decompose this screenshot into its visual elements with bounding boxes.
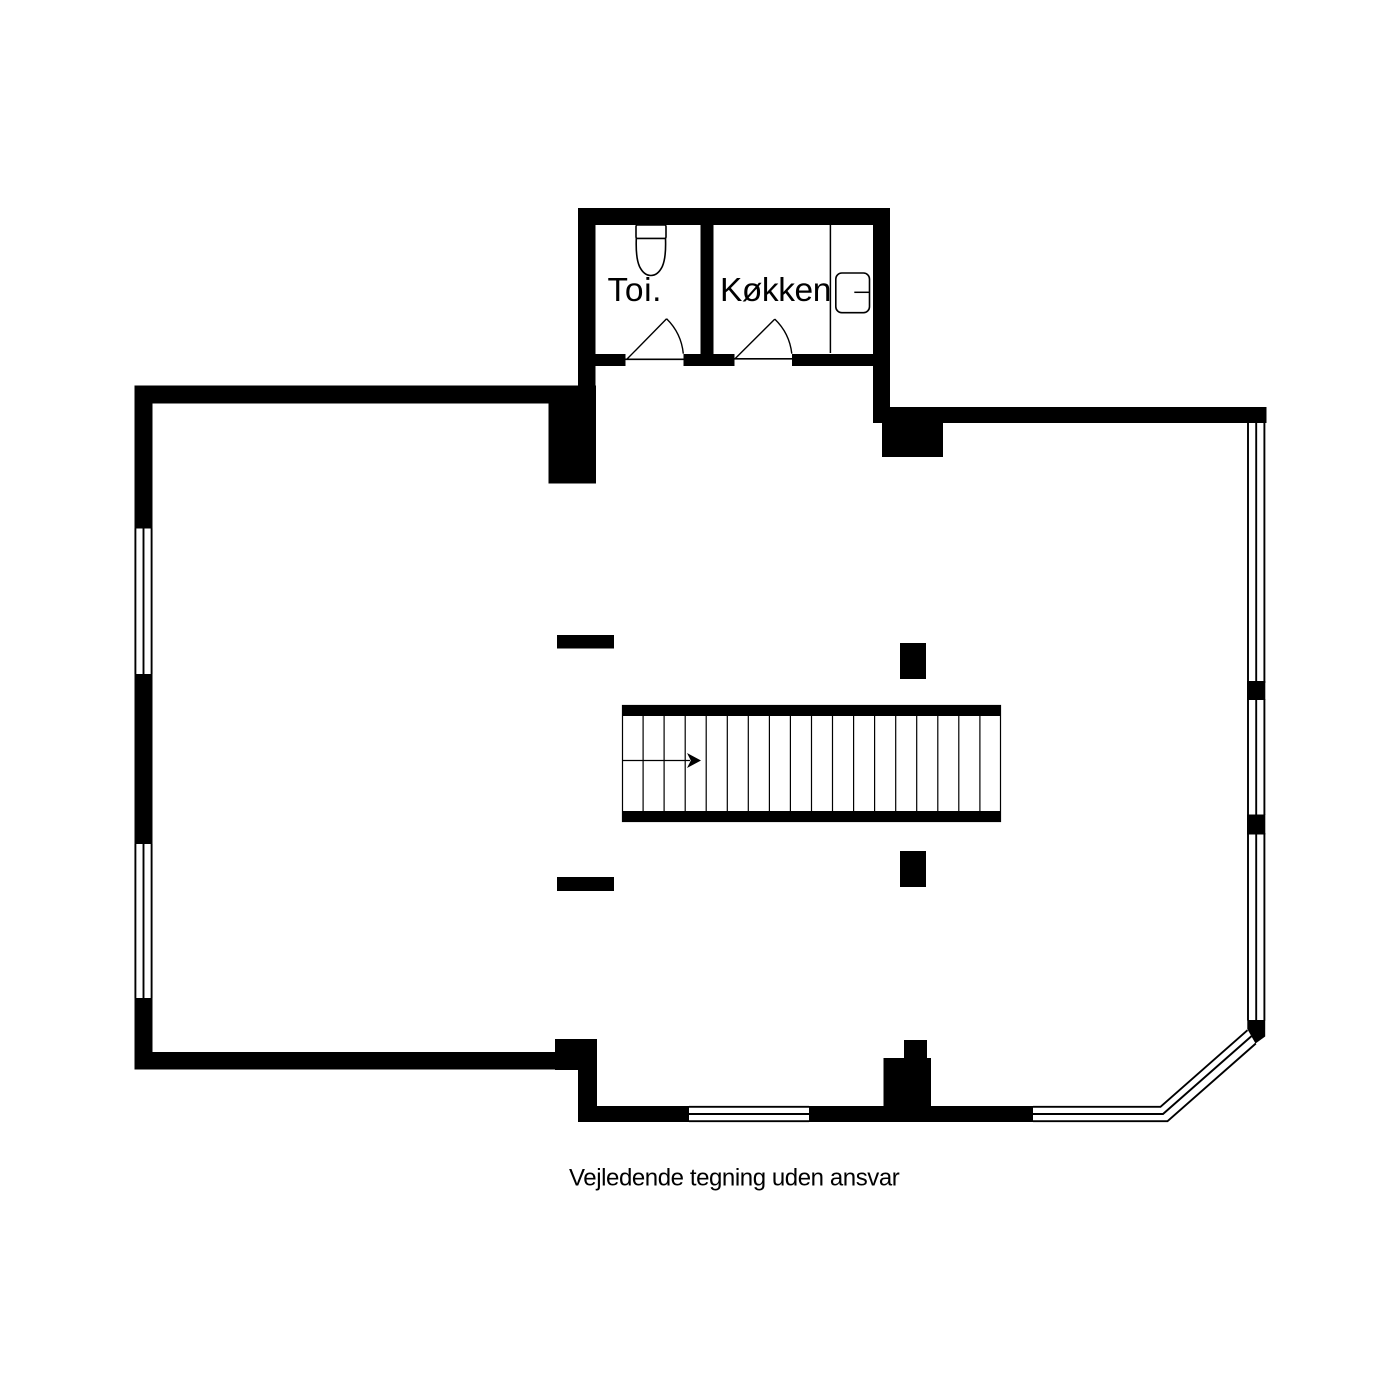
svg-text:Vejledende tegning uden ansvar: Vejledende tegning uden ansvar [569, 1165, 900, 1192]
svg-text:Toi.: Toi. [608, 272, 663, 309]
svg-text:Køkken: Køkken [720, 272, 831, 309]
